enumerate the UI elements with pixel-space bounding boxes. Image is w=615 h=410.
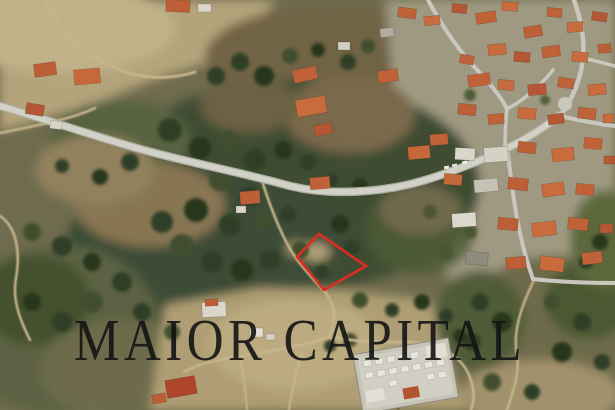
watermark-text: MAIOR CAPITAL (74, 307, 526, 373)
satellite-photo-canvas: MAIOR CAPITAL (0, 0, 615, 410)
satellite-photo: MAIOR CAPITAL (0, 0, 615, 410)
